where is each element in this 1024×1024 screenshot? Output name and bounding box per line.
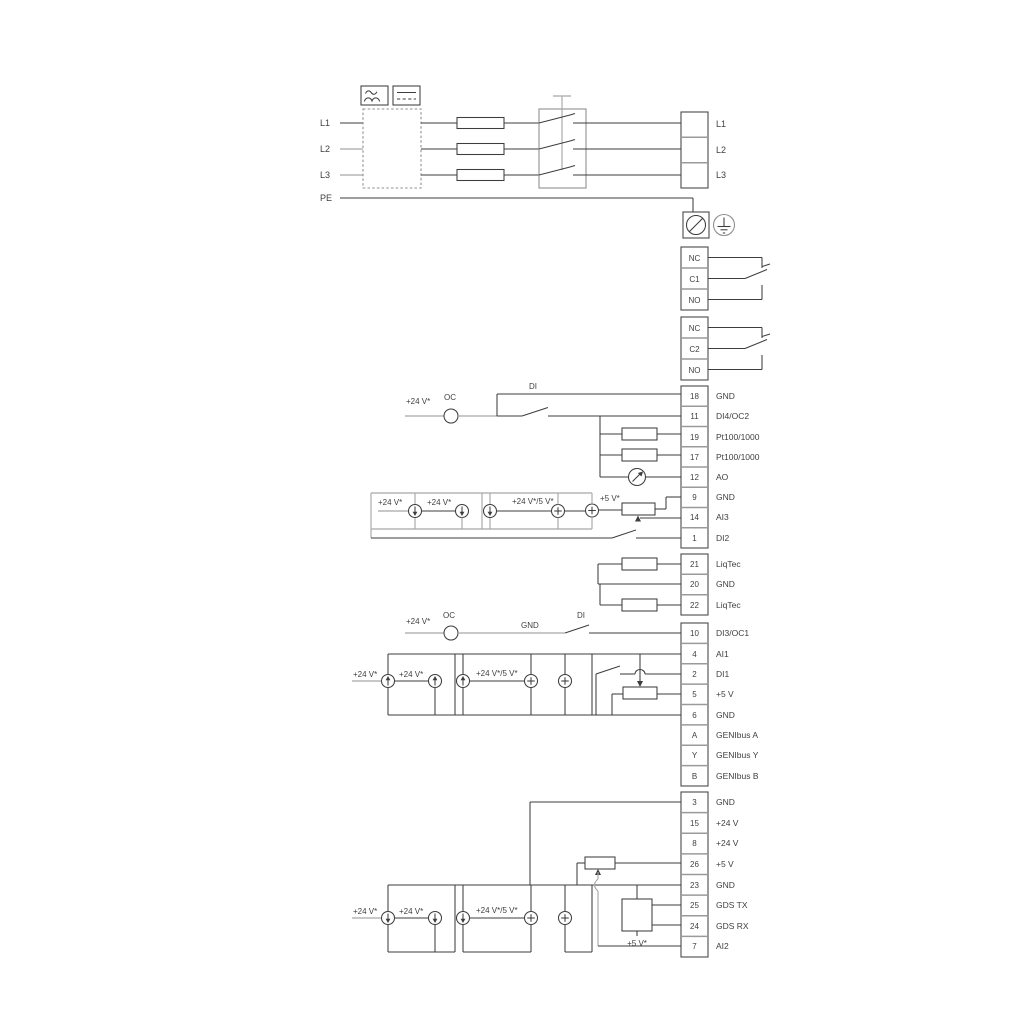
di2-switch-blade xyxy=(612,530,636,538)
terminal-number: 24 xyxy=(690,922,699,931)
voltage-source-icon xyxy=(525,912,538,925)
relay2-no: NO xyxy=(689,366,701,375)
v24-label: +24 V* xyxy=(427,498,451,507)
terminal-label: GDS TX xyxy=(716,900,748,910)
terminal-number: 17 xyxy=(690,453,699,462)
terminal-label: GENIbus Y xyxy=(716,750,759,760)
terminal-group-io3: 10 4 2 5 6 A Y B DI3/OC1 AI1 DI1 +5 V GN… xyxy=(681,623,759,786)
terminal-number: 22 xyxy=(690,601,699,610)
out-phase-label-l1: L1 xyxy=(716,119,726,129)
oc-label: OC xyxy=(444,393,456,402)
terminal-number: 15 xyxy=(690,819,699,828)
earth-ground-icon xyxy=(714,215,735,236)
liqtec-circuit xyxy=(598,558,681,611)
ac-symbol-icon xyxy=(361,86,388,105)
terminal-label: AI1 xyxy=(716,649,729,659)
terminal-label: LiqTec xyxy=(716,559,741,569)
gnd-label: GND xyxy=(521,621,539,630)
terminal-number: 18 xyxy=(690,392,699,401)
terminal-label: Pt100/1000 xyxy=(716,432,760,442)
terminal-label: AI2 xyxy=(716,941,729,951)
pt100-circuit-17 xyxy=(600,449,681,461)
terminal-number: 25 xyxy=(690,901,699,910)
ai1-supply-cluster: +24 V* +24 V* +24 V*/5 V* xyxy=(352,654,681,715)
relay1-contact xyxy=(708,258,770,300)
potentiometer xyxy=(585,857,615,869)
relay2-contact xyxy=(708,328,770,370)
terminal-number: 4 xyxy=(692,650,697,659)
di-label: DI xyxy=(577,611,585,620)
resistor xyxy=(622,428,657,440)
v5-label: +5 V* xyxy=(627,939,647,948)
pe-wire xyxy=(340,198,693,212)
converter-dashed-box xyxy=(363,109,421,188)
terminal-number: 9 xyxy=(692,493,697,502)
terminal-group-io1: 18 11 19 17 12 9 14 1 GND DI4/OC2 Pt100/… xyxy=(681,386,760,548)
power-input-wires xyxy=(340,123,363,175)
terminal-number: 14 xyxy=(690,513,699,522)
current-source-icon xyxy=(457,912,470,925)
voltage-source-icon xyxy=(586,504,599,517)
di-switch-blade xyxy=(565,625,589,633)
v24-label: +24 V* xyxy=(399,670,423,679)
dc-symbol-icon xyxy=(393,86,420,105)
terminal-number: 11 xyxy=(690,412,699,421)
v24-label: +24 V* xyxy=(406,617,430,626)
terminal-number: 6 xyxy=(692,711,697,720)
relay1-c1: C1 xyxy=(689,275,700,284)
ai2-gds-circuit: +24 V* +24 V* +24 V*/5 V* +5 V* xyxy=(352,802,681,952)
terminal-label: GENIbus A xyxy=(716,730,758,740)
v24-label: +24 V* xyxy=(399,907,423,916)
screw-terminal-icon xyxy=(683,212,709,238)
terminal-label: GENIbus B xyxy=(716,771,759,781)
potentiometer xyxy=(622,503,655,515)
relay2-c2: C2 xyxy=(689,345,700,354)
terminal-number: 23 xyxy=(690,881,699,890)
terminal-label: +5 V xyxy=(716,689,734,699)
terminal-number: 10 xyxy=(690,629,699,638)
terminal-label: Pt100/1000 xyxy=(716,452,760,462)
current-source-icon xyxy=(429,675,442,688)
di1-switch-blade xyxy=(596,666,620,674)
di3-oc1-circuit: +24 V* OC GND DI xyxy=(405,611,681,640)
fuse-l3 xyxy=(457,170,504,181)
terminal-number: 2 xyxy=(692,670,697,679)
terminal-label: GND xyxy=(716,579,735,589)
v5-label: +5 V* xyxy=(600,494,620,503)
terminal-label: DI1 xyxy=(716,669,730,679)
voltage-source-icon xyxy=(559,912,572,925)
fuse-l1 xyxy=(457,118,504,129)
di-label: DI xyxy=(529,382,537,391)
current-source-icon xyxy=(382,912,395,925)
terminal-label: DI2 xyxy=(716,533,730,543)
terminal-number: 3 xyxy=(692,798,697,807)
pt100-circuit-19 xyxy=(600,428,681,440)
relay2-block: NC C2 NO xyxy=(681,317,770,380)
current-source-icon xyxy=(456,505,469,518)
terminal-label: DI4/OC2 xyxy=(716,411,749,421)
ai3-supply-cluster: +24 V* +24 V* +24 V*/5 V* +5 V* xyxy=(371,493,681,538)
terminal-label: +24 V xyxy=(716,818,739,828)
ao-circuit xyxy=(600,469,681,486)
terminal-number: 1 xyxy=(692,534,697,543)
out-phase-label-l3: L3 xyxy=(716,170,726,180)
terminal-number: 19 xyxy=(690,433,699,442)
meter-icon xyxy=(629,469,646,486)
terminal-label: GND xyxy=(716,710,735,720)
current-source-icon xyxy=(457,675,470,688)
wiring-diagram-canvas: L1 L2 L3 PE xyxy=(0,0,1024,1024)
relay1-no: NO xyxy=(689,296,701,305)
terminal-label: GND xyxy=(716,880,735,890)
phase-label-l1: L1 xyxy=(320,118,330,128)
potentiometer xyxy=(623,687,657,699)
resistor xyxy=(622,599,657,611)
terminal-number: 21 xyxy=(690,560,699,569)
terminal-group-io4: 3 15 8 26 23 25 24 7 GND +24 V +24 V +5 … xyxy=(681,792,749,957)
current-source-icon xyxy=(382,675,395,688)
terminal-label: AO xyxy=(716,472,729,482)
power-out-wires xyxy=(573,123,681,175)
voltage-source-icon xyxy=(552,505,565,518)
terminal-number: Y xyxy=(692,751,698,760)
terminal-number: 7 xyxy=(692,942,697,951)
pe-label: PE xyxy=(320,193,332,203)
current-source-icon xyxy=(484,505,497,518)
v24-label: +24 V* xyxy=(353,907,377,916)
terminal-label: LiqTec xyxy=(716,600,741,610)
terminal-label: +24 V xyxy=(716,838,739,848)
terminal-label: +5 V xyxy=(716,859,734,869)
voltage-source-icon xyxy=(559,675,572,688)
v24-label: +24 V* xyxy=(378,498,402,507)
terminal-number: 26 xyxy=(690,860,699,869)
v24-5-label: +24 V*/5 V* xyxy=(512,497,554,506)
power-input-section: L1 L2 L3 PE xyxy=(320,86,735,238)
terminal-group-io2: 21 20 22 LiqTec GND LiqTec xyxy=(681,554,741,615)
terminal-label: GDS RX xyxy=(716,921,749,931)
relay1-block: NC C1 NO xyxy=(681,247,770,310)
relay1-nc: NC xyxy=(689,254,701,263)
wiper-arrow xyxy=(637,681,643,687)
terminal-number: 8 xyxy=(692,839,697,848)
terminal-label: GND xyxy=(716,391,735,401)
terminal-number: 5 xyxy=(692,690,697,699)
voltage-source-icon xyxy=(525,675,538,688)
current-source-icon xyxy=(429,912,442,925)
relay2-nc: NC xyxy=(689,324,701,333)
terminal-number: B xyxy=(692,772,697,781)
gds-sensor-box xyxy=(622,899,652,931)
terminal-label: DI3/OC1 xyxy=(716,628,749,638)
terminal-label: GND xyxy=(716,797,735,807)
v24-label: +24 V* xyxy=(353,670,377,679)
terminal-label: AI3 xyxy=(716,512,729,522)
resistor xyxy=(622,558,657,570)
terminal-number: 12 xyxy=(690,473,699,482)
resistor xyxy=(622,449,657,461)
terminal-number: 20 xyxy=(690,580,699,589)
oc-circle-icon xyxy=(444,409,458,423)
v24-5-label: +24 V*/5 V* xyxy=(476,906,518,915)
phase-label-l3: L3 xyxy=(320,170,330,180)
v24-5-label: +24 V*/5 V* xyxy=(476,669,518,678)
terminal-number: A xyxy=(692,731,698,740)
power-output-terminal-block: L1 L2 L3 xyxy=(681,112,726,188)
oc-label: OC xyxy=(443,611,455,620)
fuse-l2 xyxy=(457,144,504,155)
current-source-icon xyxy=(409,505,422,518)
wiring-diagram: L1 L2 L3 PE xyxy=(0,0,1024,1024)
di-switch-blade xyxy=(522,408,548,417)
terminal-label: GND xyxy=(716,492,735,502)
main-switch xyxy=(539,96,586,188)
phase-label-l2: L2 xyxy=(320,144,330,154)
v24-label: +24 V* xyxy=(406,397,430,406)
oc-circle-icon xyxy=(444,626,458,640)
out-phase-label-l2: L2 xyxy=(716,145,726,155)
